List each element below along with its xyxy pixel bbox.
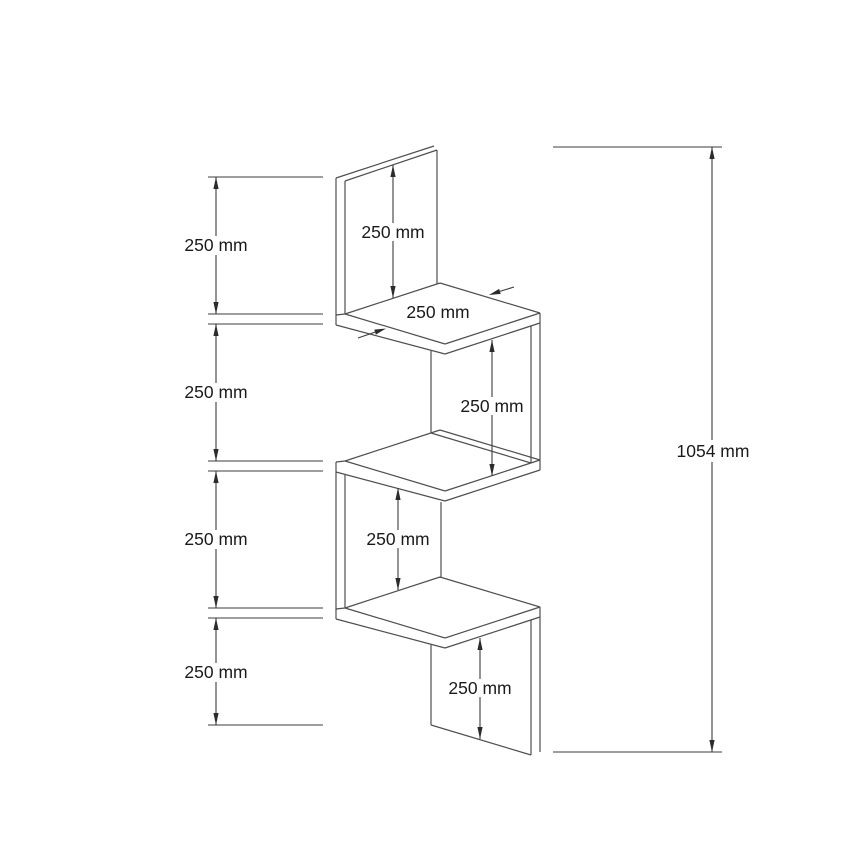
dim-label-left-segment-2: 250 mm: [184, 382, 247, 402]
shelf-3-outline: [336, 577, 540, 648]
left-extension-lines: [208, 177, 323, 725]
left-dimension-chain: 250 mm 250 mm 250 mm 250 mm: [184, 177, 323, 725]
overall-height-dimension: 1054 mm: [553, 147, 749, 752]
shelf-2-outline: [336, 430, 540, 501]
bottom-panel-height-dimension: 250 mm: [448, 638, 511, 739]
dim-label-left-segment-1: 250 mm: [184, 235, 247, 255]
dim-label-lower-gap: 250 mm: [366, 529, 429, 549]
dim-label-left-segment-3: 250 mm: [184, 529, 247, 549]
dim-label-upper-gap: 250 mm: [460, 396, 523, 416]
lower-gap-dimension: 250 mm: [366, 488, 429, 590]
dim-label-left-segment-4: 250 mm: [184, 662, 247, 682]
dim-label-shelf-depth: 250 mm: [406, 302, 469, 322]
shelf-depth-dimension: 250 mm: [358, 287, 514, 338]
upper-right-side-panel-outline: [431, 323, 540, 463]
shelf-dimension-drawing: 250 mm 250 mm 250 mm 250 mm 1054 mm 250 …: [0, 0, 868, 868]
dim-label-back-panel-height: 250 mm: [361, 222, 424, 242]
upper-gap-dimension: 250 mm: [460, 340, 523, 476]
dim-label-overall-height: 1054 mm: [677, 441, 750, 461]
back-panel-height-dimension: 250 mm: [361, 165, 424, 298]
dimension-drawing-svg: 250 mm 250 mm 250 mm 250 mm 1054 mm 250 …: [0, 0, 868, 868]
dim-label-bottom-panel-height: 250 mm: [448, 678, 511, 698]
